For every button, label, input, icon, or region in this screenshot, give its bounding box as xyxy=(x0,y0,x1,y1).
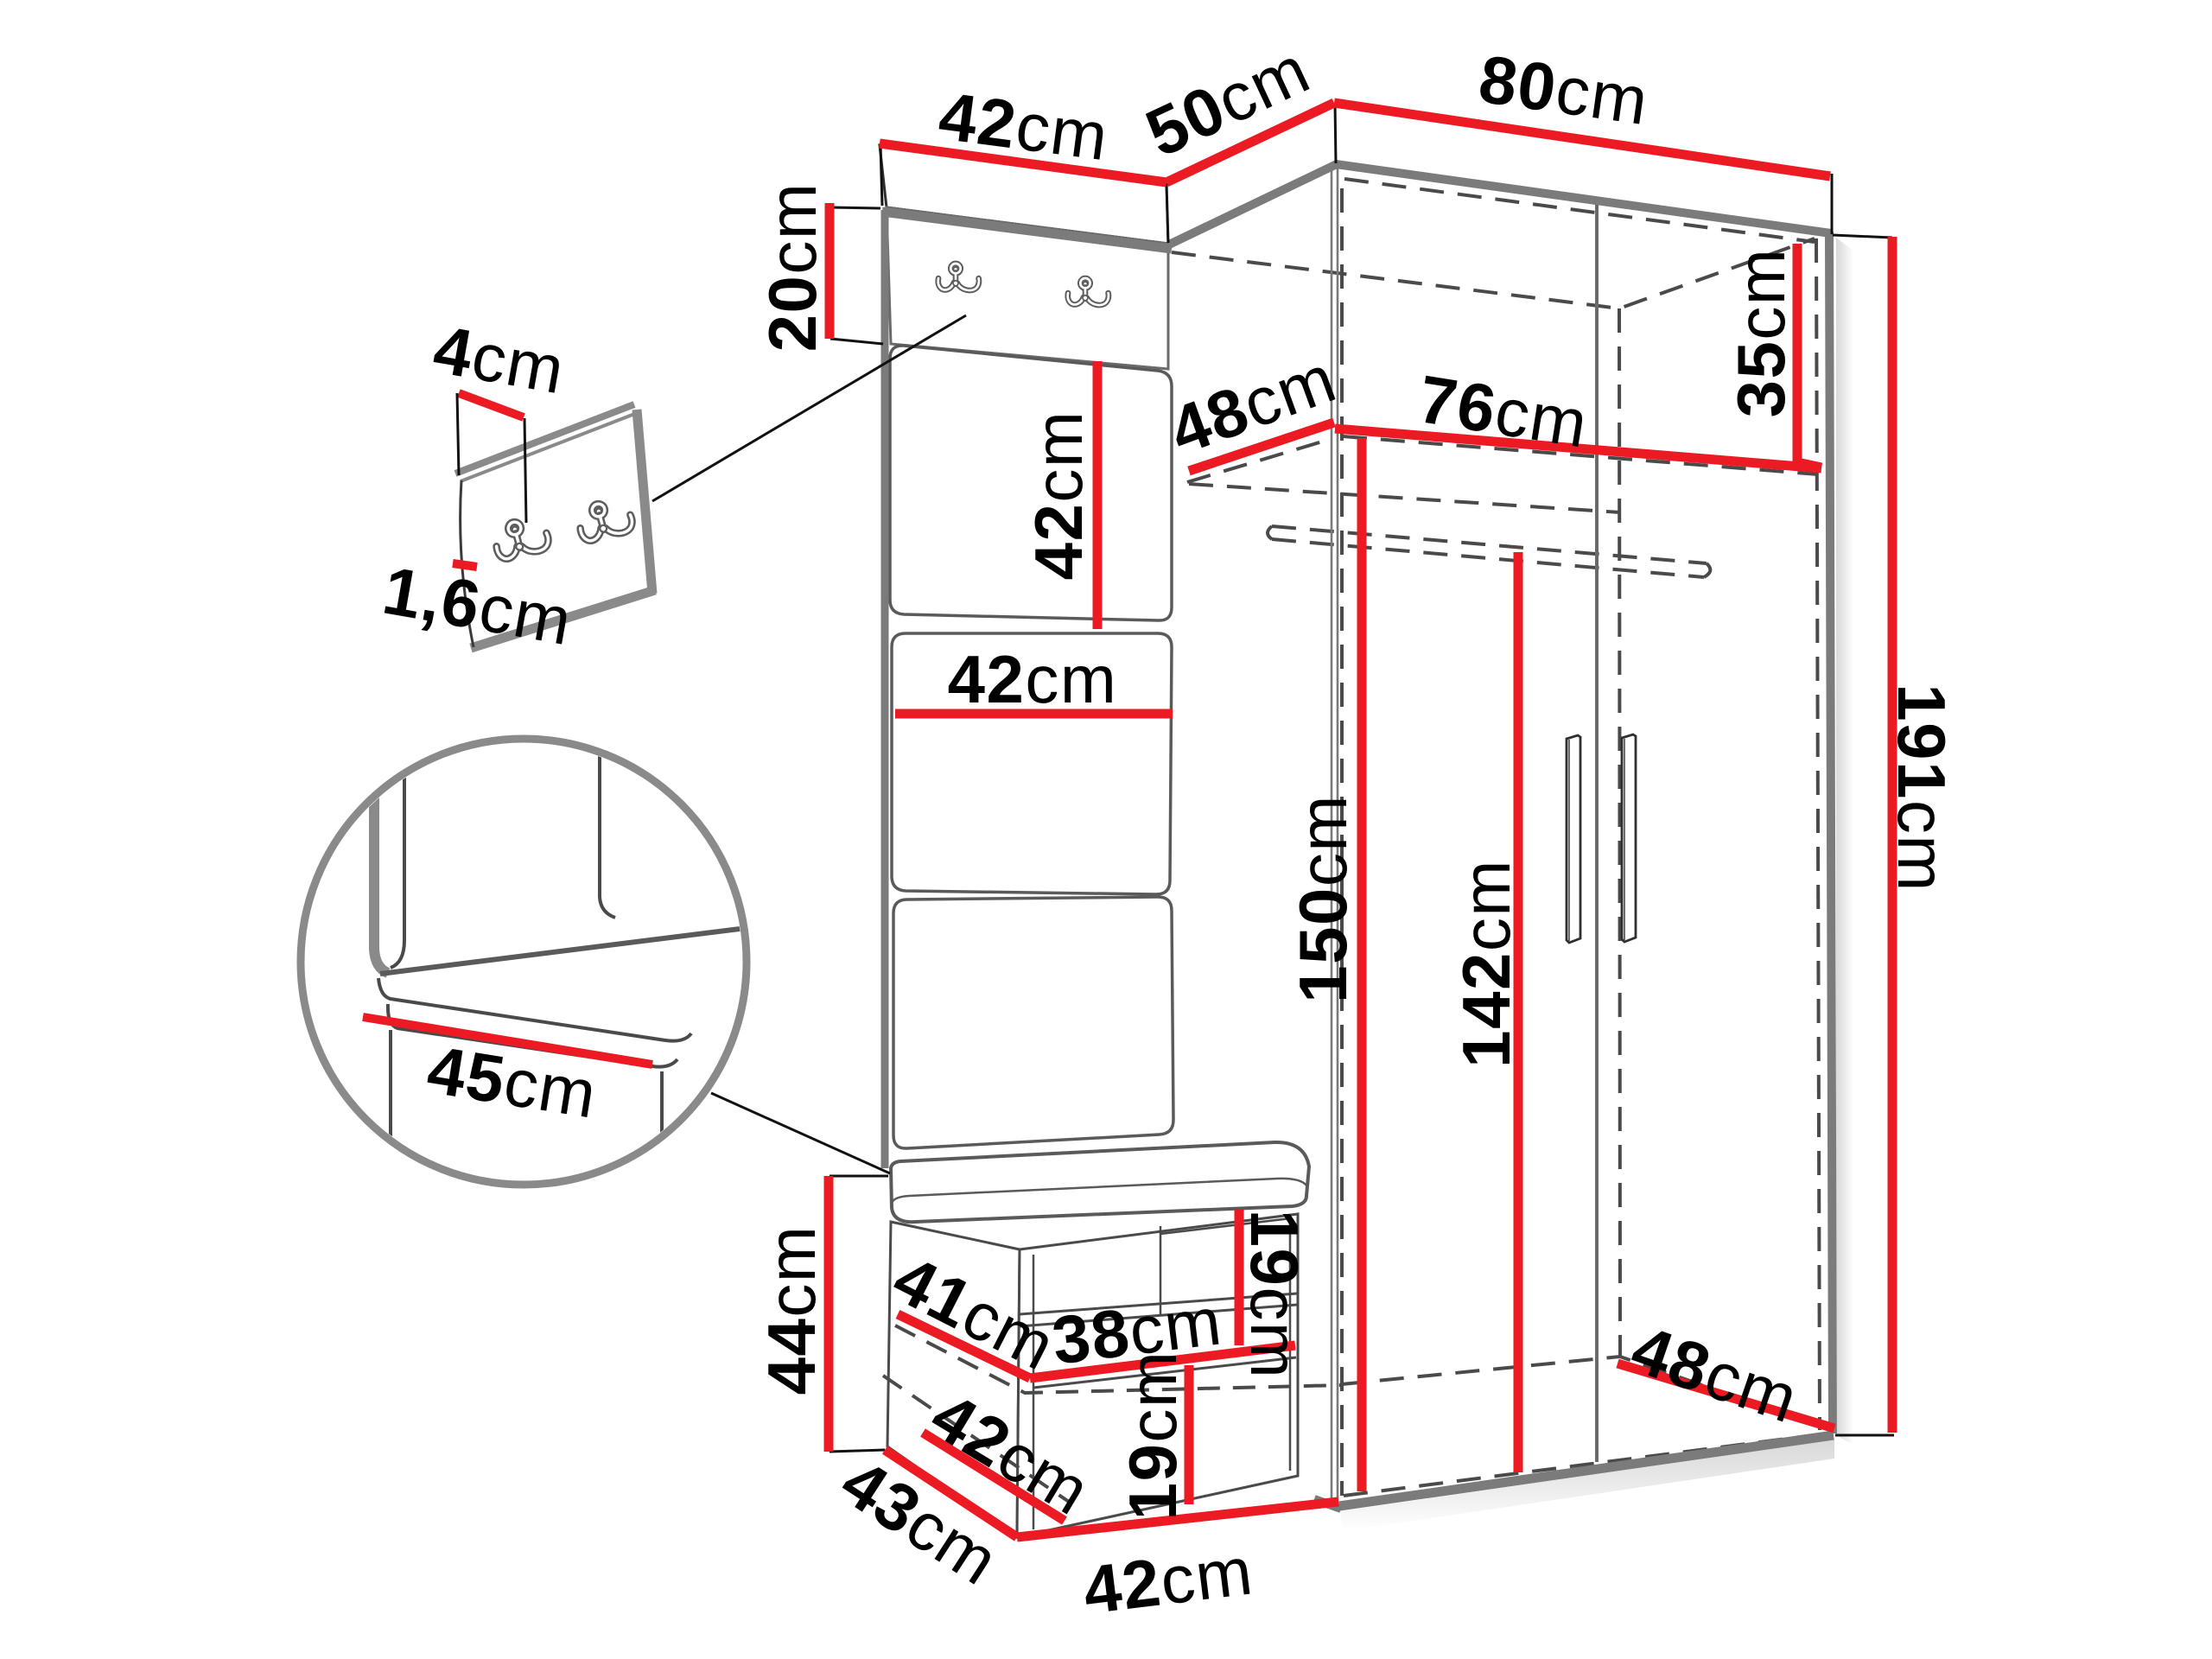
svg-text:150cm: 150cm xyxy=(1285,794,1361,1003)
svg-text:42cm: 42cm xyxy=(948,641,1118,717)
svg-text:20cm: 20cm xyxy=(754,182,830,353)
svg-text:19cm: 19cm xyxy=(1115,1351,1191,1521)
svg-text:191cm: 191cm xyxy=(1884,683,1960,893)
svg-text:42cm: 42cm xyxy=(1020,410,1096,581)
svg-text:142cm: 142cm xyxy=(1448,859,1524,1068)
svg-text:44cm: 44cm xyxy=(753,1225,829,1395)
svg-text:19cm: 19cm xyxy=(1236,1210,1313,1380)
svg-text:35cm: 35cm xyxy=(1723,248,1799,418)
